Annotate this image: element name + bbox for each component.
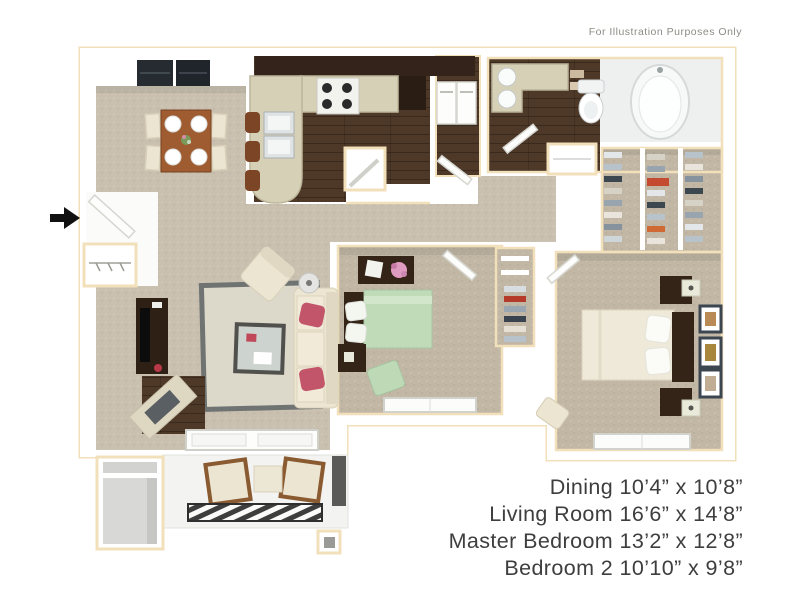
refrigerator — [398, 76, 426, 110]
headboard — [672, 312, 694, 382]
burner — [342, 83, 352, 93]
table-decor — [246, 334, 256, 342]
vanity-sink — [498, 68, 516, 86]
bar-stool — [245, 112, 260, 133]
coat-closet — [84, 244, 136, 286]
bar-stool — [245, 170, 260, 191]
dryer — [457, 82, 476, 124]
patio — [163, 455, 348, 553]
toilet-tank — [578, 80, 604, 93]
pillow — [644, 314, 671, 343]
sofa-cushion — [297, 332, 324, 366]
patio-table — [254, 466, 282, 492]
upper-cabinets — [255, 56, 475, 76]
storage-closet — [97, 457, 163, 549]
shelf — [501, 270, 529, 275]
plate — [191, 116, 207, 132]
magazine — [253, 352, 271, 365]
floorplan-page: { "notice": { "text": "For Illustration … — [0, 0, 800, 600]
bar-stool — [245, 141, 260, 162]
living-room-window — [186, 430, 318, 450]
dimension-line-dining: Dining 10’4” x 10’8” — [449, 474, 743, 501]
plate — [165, 116, 181, 132]
dresser-decor — [365, 260, 384, 279]
washer — [437, 82, 456, 124]
bedroom-2-window — [384, 398, 476, 412]
towel — [570, 70, 584, 78]
patio-chair — [281, 459, 324, 502]
dimension-line-master: Master Bedroom 13’2” x 12’8” — [449, 528, 743, 555]
pillow — [345, 301, 367, 322]
entry-arrow-icon — [50, 207, 80, 229]
bedroom-2-closet — [496, 248, 534, 346]
entry — [50, 192, 158, 286]
pillow — [645, 347, 672, 375]
patio-railing — [188, 504, 322, 521]
linen-closet — [548, 144, 596, 174]
room-dimensions-list: Dining 10’4” x 10’8” Living Room 16’6” x… — [449, 474, 743, 582]
shelf — [501, 256, 529, 261]
wall-pictures — [700, 306, 721, 397]
master-window — [594, 434, 690, 449]
dimension-line-bedroom2: Bedroom 2 10’10” x 9’8” — [449, 555, 743, 582]
pillow — [345, 323, 367, 343]
closet-rail — [678, 148, 683, 250]
stove — [317, 78, 359, 114]
pantry — [345, 148, 385, 190]
dimension-line-living: Living Room 16’6” x 14’8” — [449, 501, 743, 528]
dining-chair — [211, 146, 227, 171]
illustration-disclaimer: For Illustration Purposes Only — [589, 26, 742, 38]
burner — [322, 83, 332, 93]
tv — [140, 308, 150, 362]
vanity-sink — [498, 90, 516, 108]
plate — [191, 149, 207, 165]
coffee-table — [235, 324, 284, 373]
tub-faucet — [657, 67, 663, 73]
plate — [165, 149, 181, 165]
throw-pillow — [298, 366, 325, 392]
flower-decor — [154, 364, 162, 372]
closet-rail — [640, 148, 645, 250]
burner — [342, 99, 352, 109]
patio-post — [332, 456, 346, 506]
dining-chair — [211, 114, 227, 139]
dining-chair — [145, 146, 161, 171]
patio-chair — [205, 459, 250, 504]
burner — [322, 99, 332, 109]
dining-chair — [145, 114, 161, 139]
sofa — [294, 288, 338, 408]
